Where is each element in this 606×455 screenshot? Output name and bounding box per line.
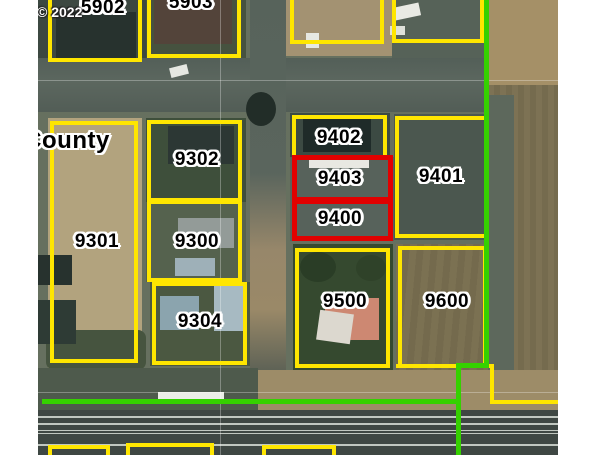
tree <box>246 92 276 126</box>
parcel-9402-label: 9402 <box>317 127 361 149</box>
lane-line <box>38 433 558 434</box>
survey-grid-line <box>38 392 558 393</box>
zoning-boundary-horizontal <box>42 399 461 404</box>
parcel-boundary-segment <box>490 364 494 404</box>
zoning-boundary-vertical-lower <box>456 363 461 455</box>
parcel-9302-label: 9302 <box>175 149 219 171</box>
parcel-5903-label: 5903 <box>169 0 213 14</box>
lane-line <box>38 430 558 431</box>
lane-line <box>38 423 558 425</box>
parcel-5902-label: 5902 <box>81 0 125 19</box>
parcel-boundary-segment <box>490 400 558 404</box>
parcel-outline-unlabeled-top-1[interactable] <box>290 0 384 44</box>
parcel-9500-label: 9500 <box>323 291 367 313</box>
parcel-outline-unlabeled-top-2[interactable] <box>392 0 484 43</box>
aerial-strip-above-highway-tan <box>258 370 558 412</box>
parcel-9304-label: 9304 <box>178 311 222 333</box>
parcel-9400-label: 9400 <box>318 208 362 230</box>
county-label: County <box>38 127 110 155</box>
parcel-9301-label: 9301 <box>75 231 119 253</box>
parcel-9300-label: 9300 <box>175 231 219 253</box>
lane-line <box>38 416 558 418</box>
survey-grid-line <box>38 80 558 81</box>
aerial-map-canvas[interactable]: 5902 5903 County 9302 9301 9300 9304 940… <box>38 0 558 455</box>
copyright-watermark: © 2022 <box>38 4 82 20</box>
parcel-9401-label: 9401 <box>419 166 463 188</box>
parcel-outline-partial-bottom-3[interactable] <box>262 445 336 455</box>
parcel-9403-label: 9403 <box>318 168 362 190</box>
aerial-scrub-strip <box>488 95 514 390</box>
parcel-outline-partial-bottom-2[interactable] <box>126 443 214 455</box>
parcel-outline-partial-bottom-1[interactable] <box>48 445 110 455</box>
parcel-9600-label: 9600 <box>425 291 469 313</box>
aerial-strip-above-highway <box>38 368 258 412</box>
zoning-boundary-vertical <box>484 0 489 368</box>
